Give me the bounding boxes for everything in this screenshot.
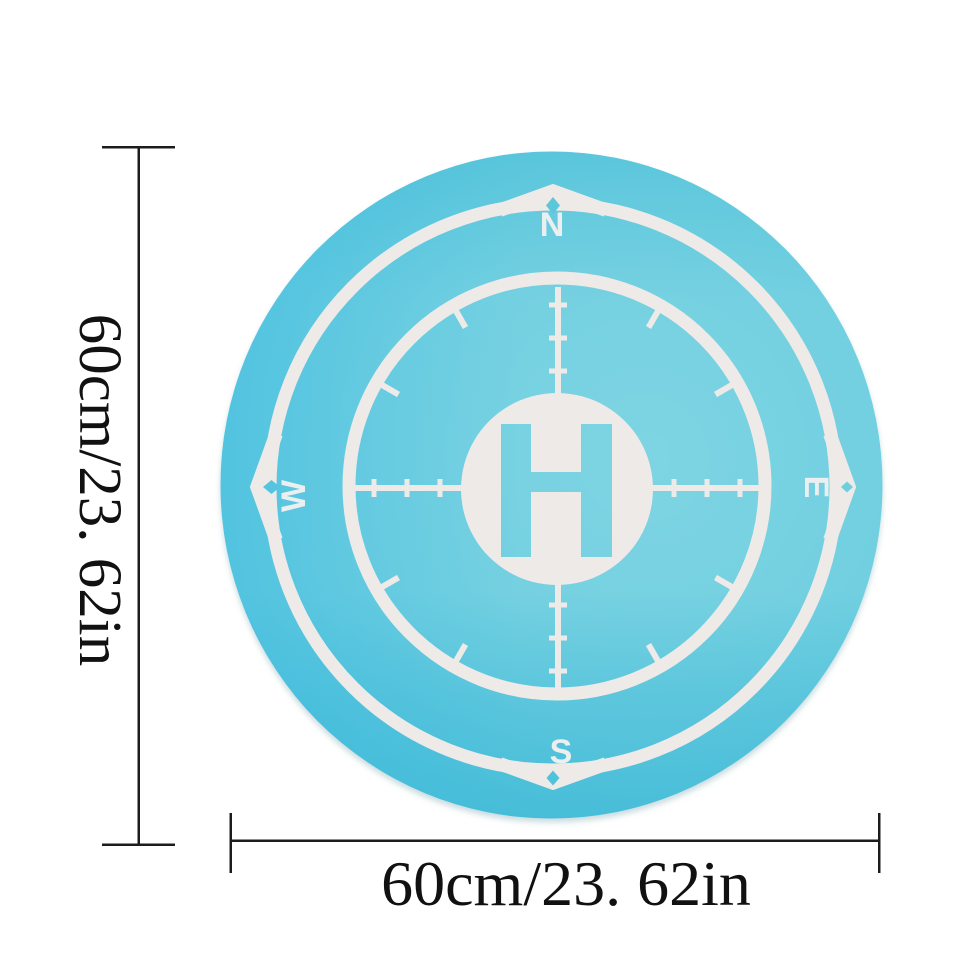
svg-text:N: N [540, 206, 565, 244]
svg-text:60cm/23. 62in: 60cm/23. 62in [66, 314, 133, 666]
svg-text:W: W [275, 479, 313, 512]
svg-text:E: E [797, 476, 835, 499]
svg-text:S: S [550, 733, 573, 771]
svg-text:60cm/23. 62in: 60cm/23. 62in [381, 848, 751, 919]
